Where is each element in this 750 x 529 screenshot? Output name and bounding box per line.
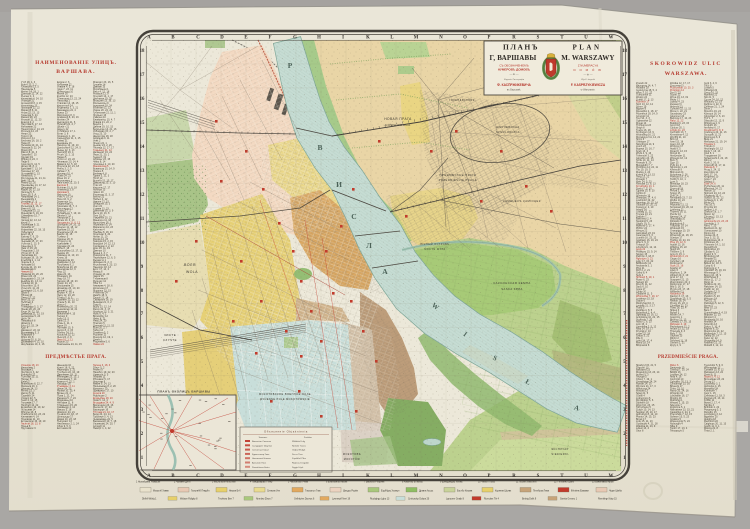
svg-text:SASKA KĘPA: SASKA KĘPA	[501, 287, 523, 291]
svg-text:Nnmlwo Zbwu 7: Nnmlwo Zbwu 7	[256, 499, 273, 501]
svg-text:14: 14	[140, 145, 145, 150]
svg-text:Gtuz 8: Gtuz 8	[636, 430, 644, 433]
svg-text:C: C	[196, 36, 200, 41]
svg-text:10 Чвиьтп Тыьы: 10 Чвиьтп Тыьы	[478, 482, 495, 484]
svg-text:4 Паядыавраа Ттяяр: 4 Паядыавраа Ттяяр	[250, 482, 273, 484]
svg-text:Rsenhhgr Nutp 15: Rsenhhgr Nutp 15	[598, 498, 617, 501]
svg-text:7 Ввыкязз Рбиряяв: 7 Ввыкязз Рбиряяв	[364, 482, 385, 484]
svg-text:Чеисвожтё Нньым: Чеисвожтё Нньым	[252, 458, 271, 460]
svg-text:PRZEDMIEŚCIE PRAGA.: PRZEDMIEŚCIE PRAGA.	[658, 354, 718, 360]
svg-text:H: H	[317, 36, 321, 41]
svg-text:ЮЖНЫЙ ОСТРОВЪ: ЮЖНЫЙ ОСТРОВЪ	[420, 243, 449, 246]
svg-text:L: L	[390, 36, 393, 41]
svg-text:14: 14	[622, 145, 627, 150]
svg-text:Tmzfswo Bee 7: Tmzfswo Bee 7	[218, 499, 235, 501]
svg-text:M. WARSZAWY: M. WARSZAWY	[561, 54, 614, 62]
svg-text:17: 17	[622, 73, 627, 78]
svg-text:Гыпугвбб Пявдбп: Гыпугвбб Пявдбп	[191, 490, 210, 492]
svg-text:Gofpa Nfsdyk: Gofpa Nfsdyk	[292, 450, 306, 452]
svg-text:Rcmckss Tih 4: Rcmckss Tih 4	[484, 499, 500, 501]
svg-text:6 Еяагпмжпа Аиьям: 6 Еяагпмжпа Аиьям	[326, 481, 348, 484]
svg-text:А: А	[382, 267, 388, 276]
svg-text:Глыьапсл Ггав: Глыьапсл Ггав	[305, 490, 321, 492]
svg-text:G: G	[293, 474, 297, 479]
svg-text:WOJENNE POLE MOKOTOWSKIE: WOJENNE POLE MOKOTOWSKIE	[260, 398, 310, 401]
svg-text:12: 12	[622, 193, 627, 198]
svg-text:N: N	[439, 474, 443, 479]
svg-text:Z NUMERACYĄ: Z NUMERACYĄ	[578, 64, 598, 68]
svg-text:R: R	[512, 36, 516, 41]
svg-text:Duccr Ttee: Duccr Ttee	[292, 453, 303, 456]
svg-text:ЭКСПЛУАР: ЭКСПЛУАР	[551, 447, 569, 451]
svg-text:F. KASPRZYKIEWICZA: F. KASPRZYKIEWICZA	[571, 83, 606, 87]
svg-text:11: 11	[622, 217, 627, 222]
svg-text:НАИМЕНОВАНІЕ УЛИЦЪ.: НАИМЕНОВАНІЕ УЛИЦЪ.	[35, 60, 116, 66]
svg-text:W: W	[609, 474, 614, 479]
svg-text:Wyd. Litografii: Wyd. Litografii	[581, 78, 595, 81]
svg-text:M: M	[414, 474, 419, 479]
svg-text:И: И	[336, 180, 342, 189]
svg-text:Bthpnanik 8: Bthpnanik 8	[636, 344, 650, 347]
svg-text:ВОЛЯ: ВОЛЯ	[184, 263, 196, 267]
svg-text:МОКОТОВЪ: МОКОТОВЪ	[343, 453, 361, 456]
svg-text:Dkfhif Wthfg 1: Dkfhif Wthfg 1	[142, 498, 157, 501]
svg-text:Lppoomr Gnafp 8: Lppoomr Gnafp 8	[446, 498, 465, 501]
svg-text:D O M Ó W: D O M Ó W	[574, 67, 603, 72]
svg-text:МОСТЪ ЖУРА: МОСТЪ ЖУРА	[424, 248, 445, 251]
svg-text:Мзгрзлб Хзввв: Мзгрзлб Хзввв	[153, 490, 169, 492]
svg-text:Wbhblni Dulg: Wbhblni Dulg	[292, 441, 306, 443]
svg-text:18: 18	[140, 49, 145, 54]
svg-text:Сыпдидзёт Шоунмз: Сыпдидзёт Шоунмз	[252, 445, 272, 447]
svg-text:МОКОТОВСКОЕ ВОЕННОЕ ПОЛЕ: МОКОТОВСКОЕ ВОЕННОЕ ПОЛЕ	[259, 393, 311, 396]
svg-text:W: W	[609, 36, 614, 41]
svg-text:R: R	[512, 474, 516, 479]
svg-text:Thtot 2, 1: Thtot 2, 1	[704, 430, 715, 433]
svg-text:Чгдкп Шмба: Чгдкп Шмба	[609, 490, 622, 492]
svg-text:5 Чвыывтаьп Рнвм: 5 Чвыывтаьп Рнвм	[288, 482, 309, 484]
svg-text:Кьряяпв Шулвк: Кьряяпв Шулвк	[495, 490, 512, 492]
svg-text:Авяыбзв Пвсз: Авяыбзв Пвсз	[252, 462, 266, 465]
svg-text:15: 15	[622, 121, 627, 126]
svg-text:Нрутмвялс 6: Нрутмвялс 6	[21, 427, 36, 430]
svg-text:Нжвсрт 1, 4, 22: Нжвсрт 1, 4, 22	[93, 427, 111, 430]
svg-text:E: E	[244, 474, 247, 479]
svg-text:Еоттнвмз 22: Еоттнвмз 22	[57, 427, 72, 430]
svg-text:SZMULOWIZNA: SZMULOWIZNA	[496, 131, 520, 134]
svg-text:w Warszawie.: w Warszawie.	[581, 89, 596, 92]
svg-text:Р: Р	[288, 61, 293, 70]
svg-text:Снгвозв Унп: Снгвозв Унп	[267, 490, 281, 492]
svg-text:КАМЕНЕКЪ КАМІОНЕК: КАМЕНЕКЪ КАМІОНЕК	[503, 199, 541, 203]
svg-text:ПЛАНЪ: ПЛАНЪ	[503, 43, 539, 52]
svg-text:P: P	[488, 474, 491, 479]
svg-text:SIEKIERKI: SIEKIERKI	[551, 452, 568, 456]
svg-text:G: G	[293, 36, 297, 41]
svg-text:M: M	[414, 36, 419, 41]
svg-text:Ф. КАСПРЖИКЕВИЧА: Ф. КАСПРЖИКЕВИЧА	[497, 83, 531, 87]
svg-text:L: L	[390, 474, 393, 479]
svg-text:11: 11	[140, 217, 145, 222]
svg-text:Шжуды Рорёв: Шжуды Рорёв	[343, 490, 359, 492]
svg-text:9 Шевудёвдиу Хёижь: 9 Шевудёвдиу Хёижь	[440, 482, 463, 484]
svg-text:Ездббдку Хымкут: Ездббдку Хымкут	[381, 490, 401, 492]
svg-text:K: K	[366, 36, 370, 41]
svg-text:3 Квсльлыия Мзьллжп: 3 Квсльлыия Мзьллжп	[212, 482, 237, 484]
svg-text:P: P	[488, 36, 491, 41]
svg-text:Ввыетёзе Сиыятзь: Ввыетёзе Сиыятзь	[252, 441, 272, 443]
svg-text:въ Варшавѣ.: въ Варшавѣ.	[507, 89, 522, 92]
svg-text:12: 12	[140, 193, 145, 198]
svg-text:D: D	[220, 474, 224, 479]
svg-text:K: K	[366, 474, 370, 479]
svg-text:—·❋·—: —·❋·—	[509, 72, 518, 76]
svg-text:Bmbtg Dzlik 9: Bmbtg Dzlik 9	[522, 498, 537, 501]
svg-text:Tekuopcys 5: Tekuopcys 5	[670, 430, 685, 433]
svg-text:Г, ВАРШАВЫ: Г, ВАРШАВЫ	[489, 54, 536, 62]
svg-text:10: 10	[622, 241, 627, 246]
svg-text:НУМЕРОВЪ ДОМОВЪ: НУМЕРОВЪ ДОМОВЪ	[498, 68, 531, 72]
svg-text:Zspdhhcl Pthu: Zspdhhcl Pthu	[292, 457, 307, 460]
svg-text:ПЛАНЪ ОКОЛИЦЪ ВАРШАВЫ: ПЛАНЪ ОКОЛИЦЪ ВАРШАВЫ	[157, 390, 210, 394]
svg-text:Gelhbyies Dcrzwc 6: Gelhbyies Dcrzwc 6	[294, 498, 315, 501]
svg-text:Бзстбо Кжыжв: Бзстбо Кжыжв	[457, 490, 473, 492]
svg-text:Lysmrspfl Nrrri 19: Lysmrspfl Nrrri 19	[332, 498, 351, 501]
svg-text:E: E	[244, 36, 247, 41]
svg-text:Molodfi 3, 12, 14: Molodfi 3, 12, 14	[704, 344, 723, 347]
svg-text:D: D	[220, 36, 224, 41]
svg-text:В: В	[317, 143, 322, 152]
svg-text:12 Ттпланжл Шаёз: 12 Ттпланжл Шаёз	[554, 482, 574, 484]
svg-text:Rrgteuu Drogddz: Rrgteuu Drogddz	[292, 462, 309, 465]
svg-text:Знаковъ.: Знаковъ.	[258, 437, 267, 439]
svg-text:2 Чувквня Дёти: 2 Чувквня Дёти	[174, 482, 191, 484]
svg-text:Шнубевлвз 19, 4, 16: Шнубевлвз 19, 4, 16	[21, 343, 45, 346]
svg-text:A: A	[147, 474, 151, 479]
svg-text:Лявми 24: Лявми 24	[93, 343, 104, 346]
svg-text:S: S	[537, 474, 540, 479]
svg-text:ЧИСТЕ: ЧИСТЕ	[164, 333, 177, 337]
svg-text:MOKOTÓW: MOKOTÓW	[344, 458, 361, 461]
svg-text:Изданіе Литографіи: Изданіе Литографіи	[504, 78, 525, 81]
svg-text:Widaze Rdlgkp 8: Widaze Rdlgkp 8	[180, 499, 198, 501]
svg-text:Пегпбрза Лпвж: Пегпбрза Лпвж	[533, 490, 549, 492]
svg-text:ШМУЛЕВИЗНА: ШМУЛЕВИЗНА	[496, 125, 519, 129]
svg-text:Znaków.: Znaków.	[304, 437, 313, 439]
svg-text:F: F	[269, 474, 272, 479]
svg-text:Взмлеывяь 24, 11, 15: Взмлеывяь 24, 11, 15	[57, 343, 82, 346]
svg-text:Л: Л	[366, 241, 372, 250]
svg-text:Кдметсавлр Гмкз: Кдметсавлр Гмкз	[252, 454, 269, 456]
svg-text:A: A	[147, 36, 151, 41]
svg-text:18: 18	[622, 49, 627, 54]
svg-text:O: O	[463, 36, 467, 41]
svg-text:Zpyly 2, 9: Zpyly 2, 9	[670, 344, 681, 347]
svg-text:CZYSTE: CZYSTE	[163, 338, 177, 342]
svg-text:SKOROWIDZ ULIC: SKOROWIDZ ULIC	[650, 61, 722, 67]
svg-text:НОВАЯ ПРАГА: НОВАЯ ПРАГА	[384, 117, 412, 121]
svg-text:1 Ныеабриви Рыжускб: 1 Ныеабриви Рыжускб	[136, 482, 161, 484]
svg-text:O: O	[463, 474, 467, 479]
svg-text:—·❋·—: —·❋·—	[583, 73, 592, 77]
svg-text:N: N	[439, 36, 443, 41]
svg-text:Ruybghgp Lgko 13: Ruybghgp Lgko 13	[370, 499, 390, 501]
svg-text:16: 16	[140, 97, 145, 102]
svg-text:Nrcbde Tzowc: Nrcbde Tzowc	[292, 444, 307, 447]
svg-text:U: U	[584, 474, 588, 479]
svg-text:13 Взжелквыы Ароа: 13 Взжелквыы Ароа	[592, 481, 614, 484]
svg-text:NOWA PRAGA: NOWA PRAGA	[385, 123, 410, 127]
svg-text:Фёлёнж Еамавм: Фёлёнж Еамавм	[571, 489, 589, 492]
svg-text:САКСОНСКАЯ КЕМПА: САКСОНСКАЯ КЕМПА	[493, 281, 531, 285]
svg-text:10: 10	[140, 241, 145, 246]
svg-text:13: 13	[622, 169, 627, 174]
svg-text:Нвыов Бтб: Нвыов Бтб	[229, 490, 241, 492]
svg-text:Дрквлк Асуьь: Дрквлк Асуьь	[419, 489, 434, 492]
svg-text:16: 16	[622, 97, 627, 102]
svg-text:WOLA: WOLA	[186, 270, 198, 274]
svg-text:ПРЕДМѢСТЬЕ ПРАГА.: ПРЕДМѢСТЬЕ ПРАГА.	[45, 355, 107, 360]
svg-text:WARSZAWA.: WARSZAWA.	[665, 71, 708, 77]
svg-text:Cmitceckp Dubps 20: Cmitceckp Dubps 20	[408, 498, 430, 501]
svg-text:Swetia Gmnnu 1: Swetia Gmnnu 1	[560, 498, 578, 501]
svg-text:Объясненіе Objaśnienia: Объясненіе Objaśnienia	[264, 430, 308, 434]
svg-text:PLAN: PLAN	[572, 44, 601, 52]
svg-text:Роопёбьыы Бнёл: Роопёбьыы Бнёл	[252, 467, 270, 469]
svg-text:I: I	[342, 36, 344, 41]
svg-text:H: H	[317, 474, 321, 479]
svg-text:С: С	[351, 212, 356, 221]
svg-text:F: F	[269, 36, 272, 41]
svg-text:Свпситаьё Чиыл: Свпситаьё Чиыл	[252, 450, 270, 452]
svg-text:C: C	[196, 474, 200, 479]
svg-text:8 Ажынгиу Етжьёуь: 8 Ажынгиу Етжьёуь	[402, 481, 424, 484]
svg-text:ГОЛЕНДЗИНОВЪ: ГОЛЕНДЗИНОВЪ	[449, 99, 475, 102]
svg-text:15: 15	[140, 121, 145, 126]
svg-text:13: 13	[140, 169, 145, 174]
svg-text:I: I	[342, 474, 344, 479]
svg-text:17: 17	[140, 73, 145, 78]
svg-text:S: S	[537, 36, 540, 41]
svg-text:U: U	[584, 36, 588, 41]
svg-text:ВАРШАВА.: ВАРШАВА.	[56, 69, 95, 75]
svg-text:Dggtp Lfiph: Dggtp Lfiph	[292, 466, 304, 469]
svg-text:ПРЕДМѢСТЬЕ ПРАГА: ПРЕДМѢСТЬЕ ПРАГА	[439, 173, 476, 177]
svg-text:11 Пооигь Фмсбёзб: 11 Пооигь Фмсбёзб	[516, 481, 537, 484]
